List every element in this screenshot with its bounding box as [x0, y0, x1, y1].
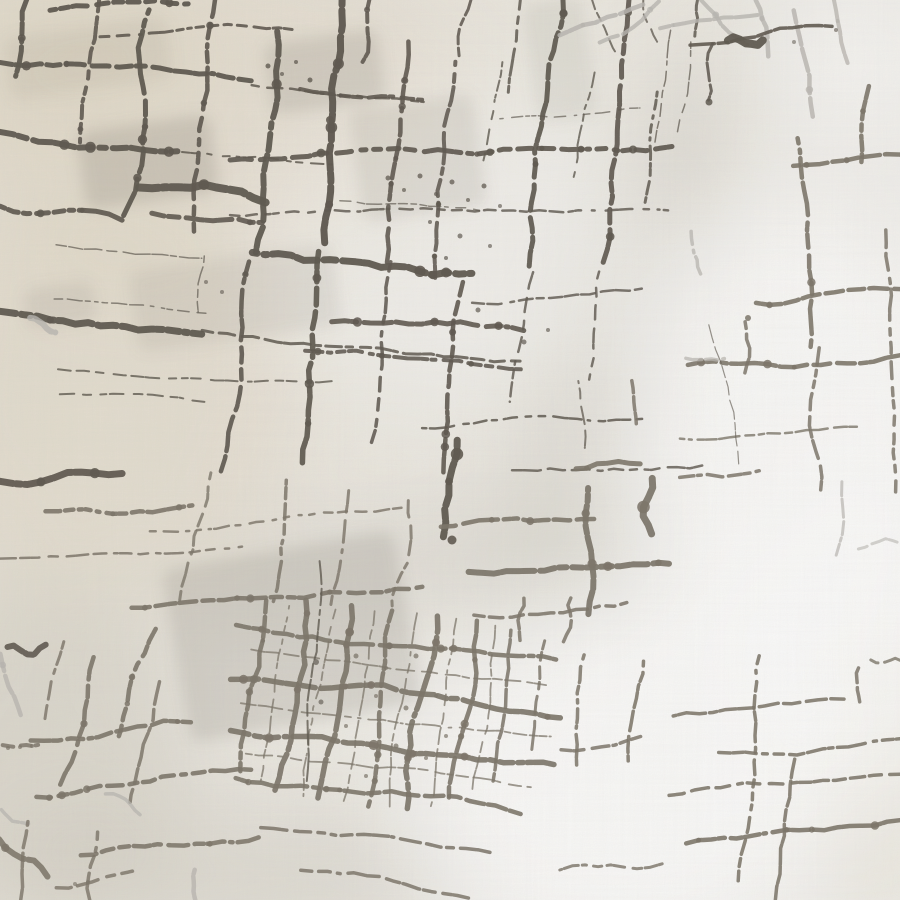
fabric-pattern-svg — [0, 0, 900, 900]
fabric-photo — [0, 0, 900, 900]
screenshot-canvas — [0, 0, 900, 900]
